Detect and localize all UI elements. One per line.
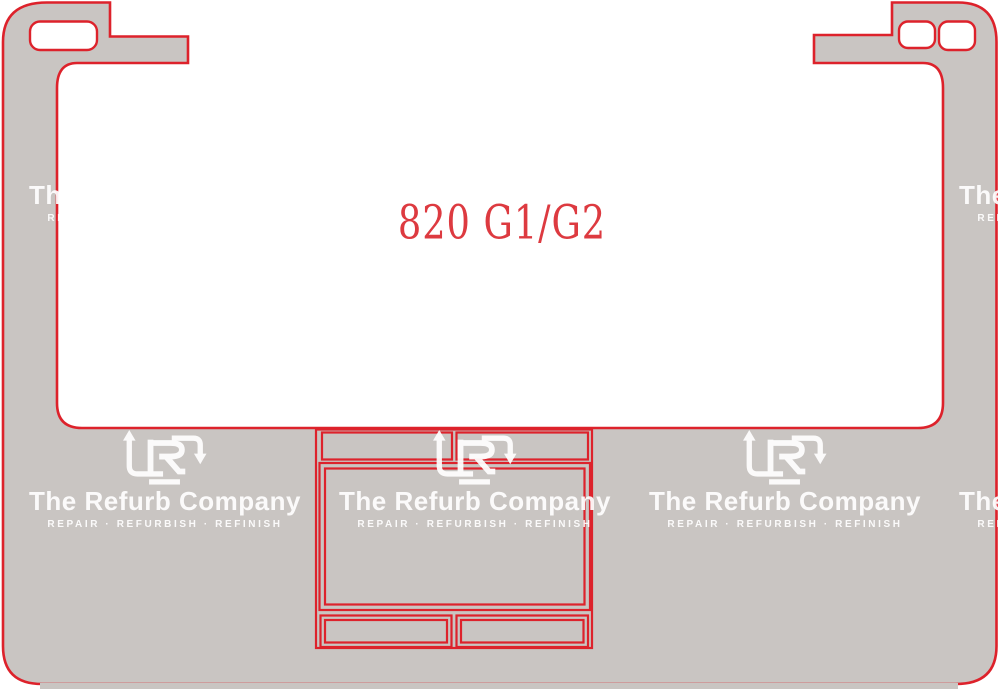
- left-hinge-cutout: [30, 22, 97, 51]
- skin-template-image: 820 G1/G2 The Refurb Company REPAIR · RE…: [0, 0, 1000, 689]
- palmrest-outline-drawing: [0, 0, 1000, 689]
- right-hinge-cutout-2: [939, 22, 975, 51]
- right-hinge-cutout-1: [899, 22, 935, 49]
- model-label: 820 G1/G2: [398, 197, 606, 249]
- bottom-crop-strip: [40, 683, 958, 689]
- palmrest-body-outline: [3, 3, 997, 685]
